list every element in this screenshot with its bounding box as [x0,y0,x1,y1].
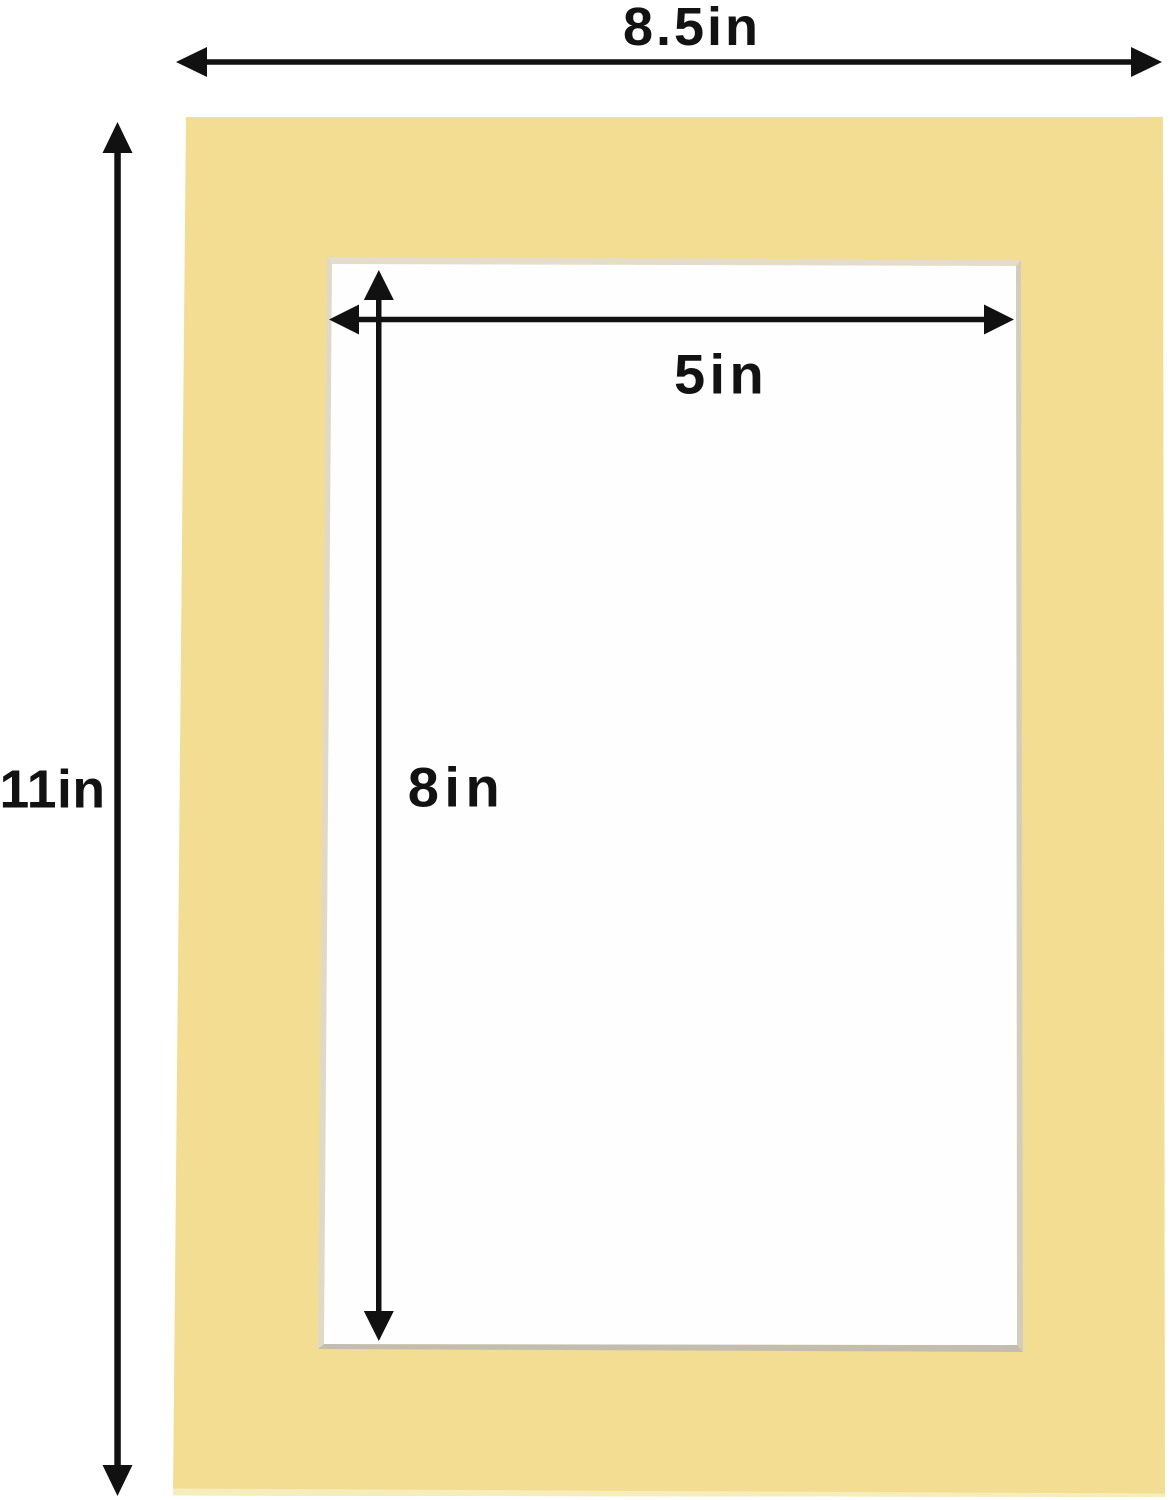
svg-text:11in: 11in [0,761,106,820]
svg-text:5in: 5in [674,343,768,406]
svg-text:8in: 8in [408,755,505,818]
svg-text:8.5in: 8.5in [623,0,761,57]
